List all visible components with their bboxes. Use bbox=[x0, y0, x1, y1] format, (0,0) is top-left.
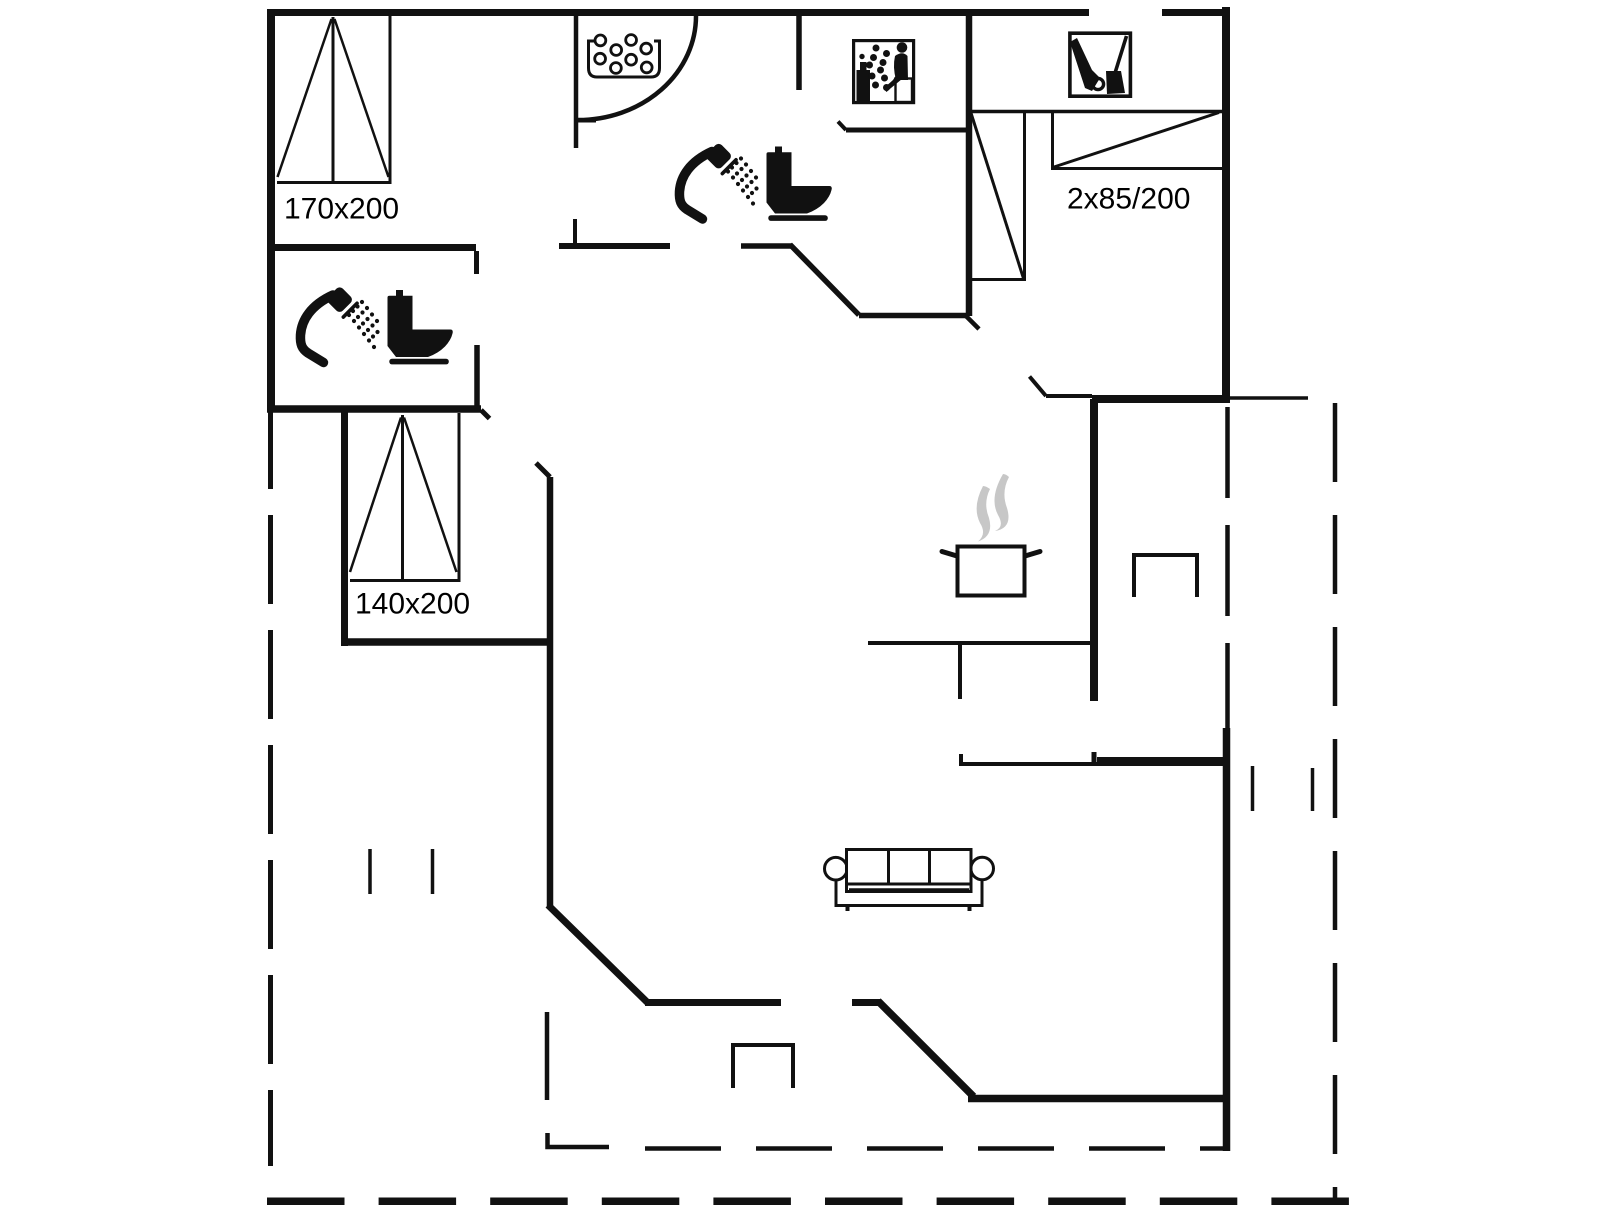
svg-text:170x200: 170x200 bbox=[284, 193, 399, 226]
svg-text:140x200: 140x200 bbox=[355, 588, 470, 621]
svg-text:2x85/200: 2x85/200 bbox=[1067, 183, 1190, 216]
